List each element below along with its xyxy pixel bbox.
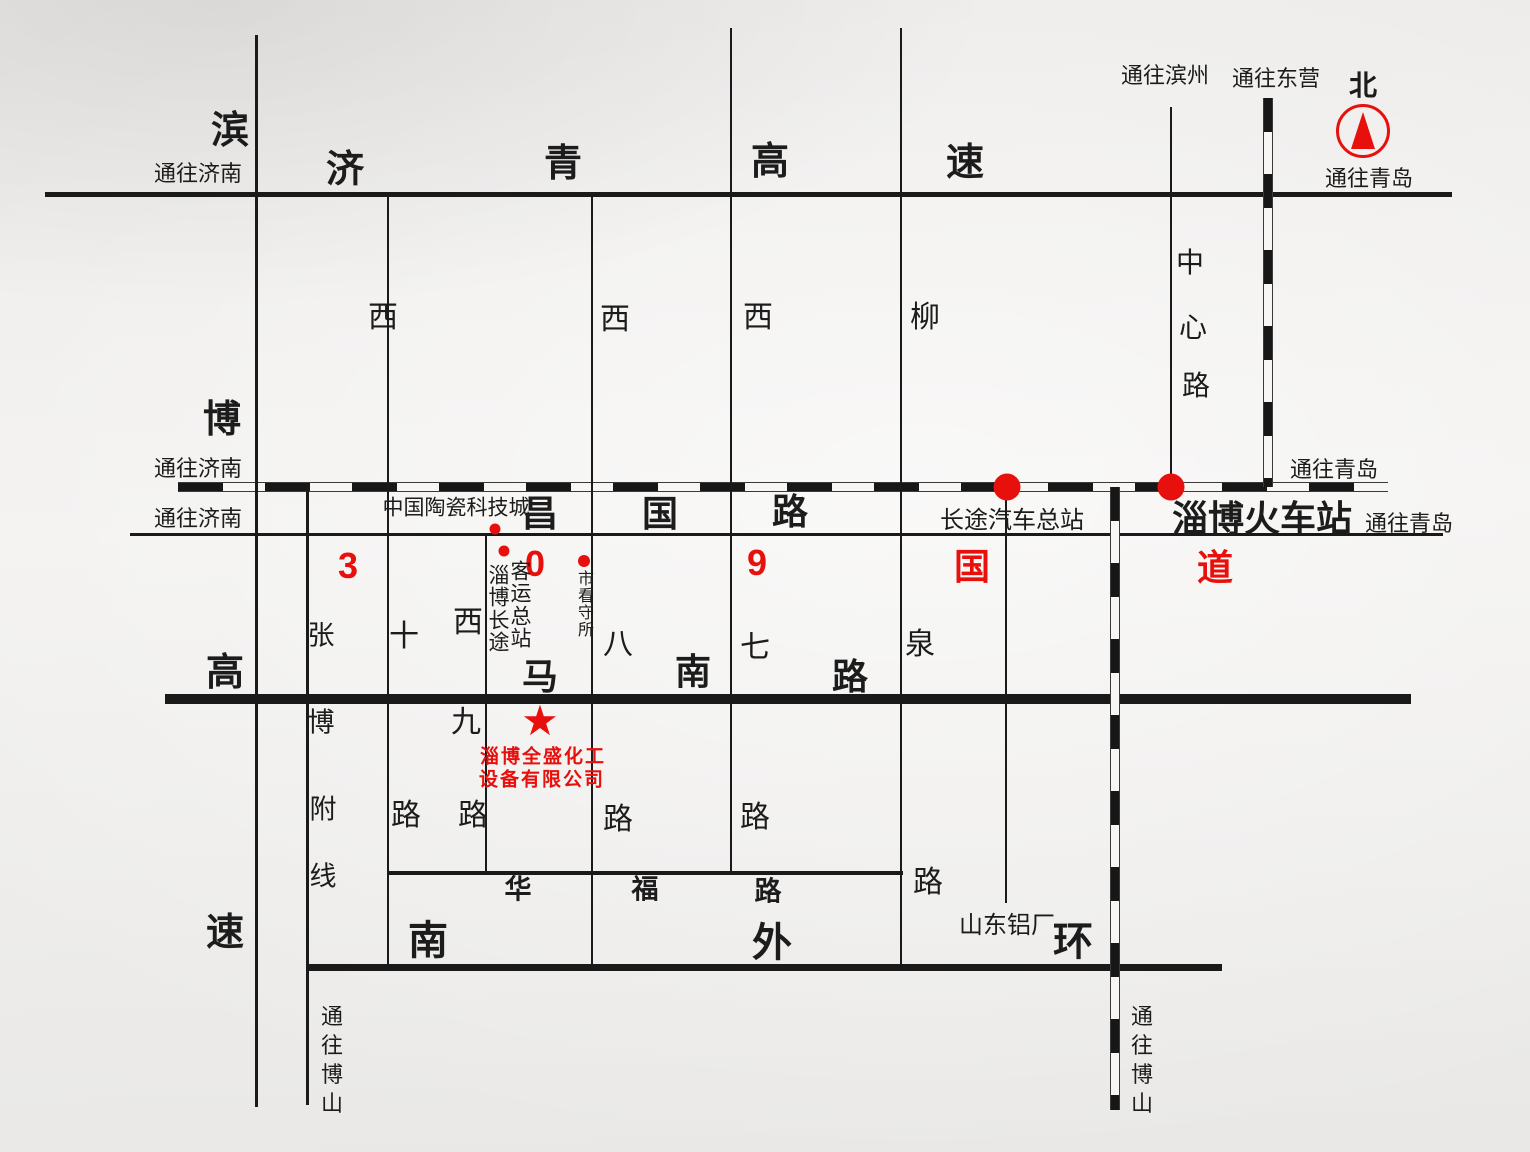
road-manan-line [165,694,1411,704]
road-liuquan-line [900,28,902,968]
railway-south-branch-line [1110,487,1120,1110]
manan-char-1: 马 [522,659,558,695]
manan-char-2: 南 [675,654,711,690]
to-qingdao-rail-label: 通往青岛 [1290,459,1378,481]
bus-terminal-label-col1: 淄博长途 [488,566,511,655]
railway-north-branch-line [1263,98,1273,487]
to-binzhou-label: 通往滨州 [1121,65,1209,87]
to-boshan-west-label: 通往博山 [320,1002,344,1118]
coach-station-label: 长途汽车总站 [940,509,1084,533]
company-name-line1: 淄博全盛化工 [480,748,606,767]
south-ring-char-3: 环 [1053,922,1093,962]
to-dongying-label: 通往东营 [1232,68,1320,90]
binbo-char-1: 滨 [211,112,249,150]
compass-icon [1336,104,1390,158]
zhangbo-char-2: 博 [308,710,335,737]
huafu-char-3: 路 [755,879,782,906]
to-boshan-rail-label: 通往博山 [1130,1002,1154,1118]
road-station-access-line [1005,487,1007,903]
xiba-char-1: 西 [600,305,630,335]
xijiu-char-1: 西 [453,608,483,638]
xiqi-char-3: 路 [740,803,770,833]
xiba-char-3: 路 [603,805,633,835]
road-zhongxin-line [1170,107,1172,487]
detention-house-label: 市看守所 [577,572,594,640]
zhangbo-char-3: 附 [310,797,337,824]
liuquan-char-1: 柳 [910,303,940,333]
ceramics-city-label: 中国陶瓷科技城 [383,498,530,519]
zhangbo-char-4: 线 [310,864,337,891]
road-south-ring-line [308,964,1222,971]
binbo-char-3: 高 [206,654,244,692]
to-qingdao-road-label: 通往青岛 [1365,513,1453,535]
ceramics-city-dot [490,524,501,535]
g309-char-3: 9 [747,545,767,581]
to-qingdao-compass-label: 通往青岛 [1325,168,1413,190]
bus-terminal-dot [499,546,510,557]
to-jinan-expwy-label: 通往济南 [154,163,242,185]
jiqing-char-3: 高 [751,143,789,181]
zhangbo-char-1: 张 [308,623,335,650]
coach-station-dot [994,474,1021,501]
jiqing-char-2: 青 [544,145,582,183]
compass-needle-icon [1351,112,1375,149]
xishi-char-2: 十 [389,622,419,652]
changguo-char-3: 路 [772,494,808,530]
detention-house-dot [578,555,590,567]
xishi-char-1: 西 [368,303,398,333]
aluminum-plant-label: 山东铝厂 [959,914,1055,938]
g309-char-1: 3 [338,548,358,584]
liuquan-char-2: 泉 [905,630,935,660]
xiqi-char-2: 七 [740,633,770,663]
zhongxin-char-1: 中 [1176,249,1204,277]
zhongxin-char-2: 心 [1179,314,1207,342]
company-name-line2: 设备有限公司 [479,771,605,790]
south-ring-char-1: 南 [408,921,448,961]
to-jinan-rail-label: 通往济南 [154,458,242,480]
huafu-char-1: 华 [505,877,532,904]
manan-char-3: 路 [832,659,868,695]
xijiu-char-3: 路 [458,801,488,831]
huafu-char-2: 福 [632,877,659,904]
xiqi-char-1: 西 [743,303,773,333]
railway-station-label: 淄博火车站 [1172,501,1352,537]
zhongxin-char-3: 路 [1182,372,1210,400]
xishi-char-3: 路 [391,801,421,831]
xiba-char-2: 八 [603,630,633,660]
binbo-char-4: 速 [206,914,244,952]
g309-char-5: 道 [1197,550,1233,586]
binbo-char-2: 博 [203,401,241,439]
map-canvas: 北 通往济南 通往济南 通往济南 通往滨州 通往东营 通往青岛 通往青岛 通往青… [0,0,1530,1152]
changguo-char-2: 国 [642,496,678,532]
to-jinan-road-label: 通往济南 [154,508,242,530]
jiqing-char-1: 济 [326,151,364,189]
xijiu-char-2: 九 [451,708,481,738]
bus-terminal-label-col2: 客运总站 [510,562,533,651]
g309-char-4: 国 [954,549,990,585]
railway-station-dot [1158,474,1185,501]
company-star-icon: ★ [521,700,559,742]
liuquan-char-3: 路 [913,868,943,898]
south-ring-char-2: 外 [752,923,792,963]
road-xiqi-line [730,28,732,873]
jiqing-char-4: 速 [946,144,984,182]
north-label: 北 [1349,72,1377,100]
road-binbo-expressway-line [255,35,258,1107]
